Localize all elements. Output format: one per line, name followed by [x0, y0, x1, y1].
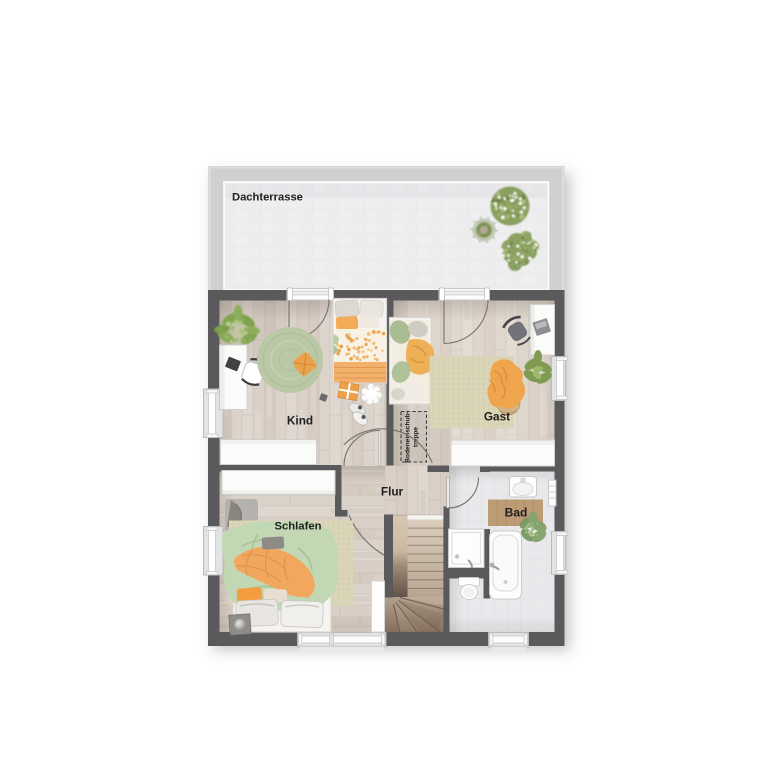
svg-text:Flur: Flur — [381, 485, 404, 499]
svg-text:Gast: Gast — [484, 410, 510, 424]
svg-text:Bad: Bad — [505, 506, 528, 520]
svg-text:Schlafen: Schlafen — [274, 521, 321, 533]
svg-text:treppe: treppe — [413, 427, 420, 447]
svg-text:Kind: Kind — [287, 414, 313, 428]
svg-text:Dachterrasse: Dachterrasse — [232, 192, 303, 204]
